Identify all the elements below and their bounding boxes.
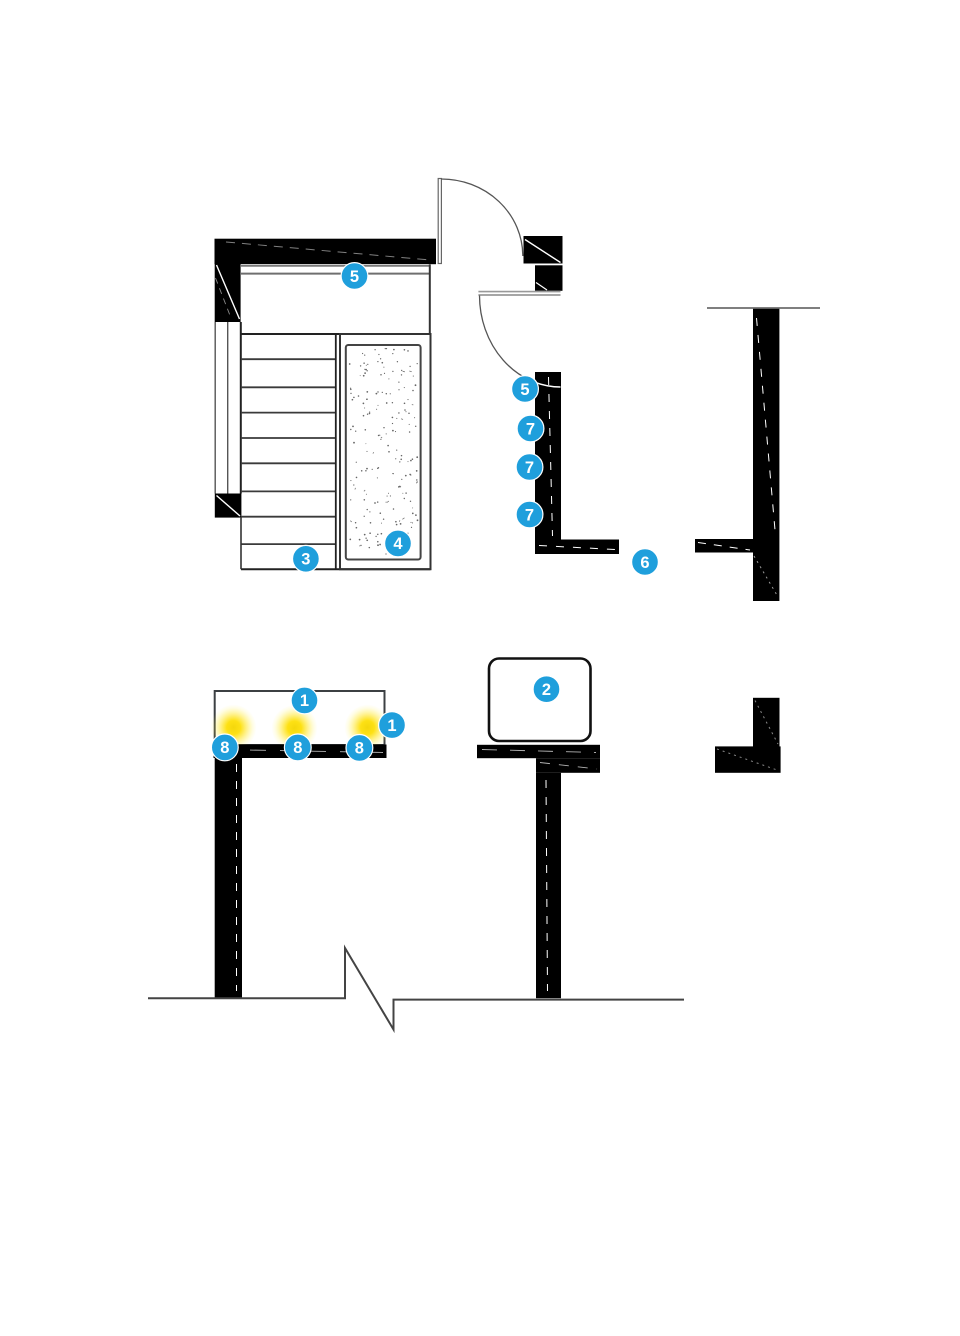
svg-text:8: 8: [355, 740, 364, 758]
svg-text:8: 8: [220, 739, 229, 757]
svg-text:1: 1: [387, 717, 396, 735]
svg-text:8: 8: [293, 739, 302, 757]
svg-text:7: 7: [525, 506, 534, 524]
svg-text:6: 6: [640, 554, 649, 572]
svg-text:3: 3: [301, 551, 310, 569]
svg-text:5: 5: [520, 381, 529, 399]
svg-text:5: 5: [350, 268, 359, 286]
svg-text:1: 1: [300, 692, 309, 710]
svg-text:7: 7: [525, 459, 534, 477]
svg-text:7: 7: [526, 420, 535, 438]
svg-text:4: 4: [393, 535, 403, 553]
svg-text:2: 2: [542, 681, 551, 699]
